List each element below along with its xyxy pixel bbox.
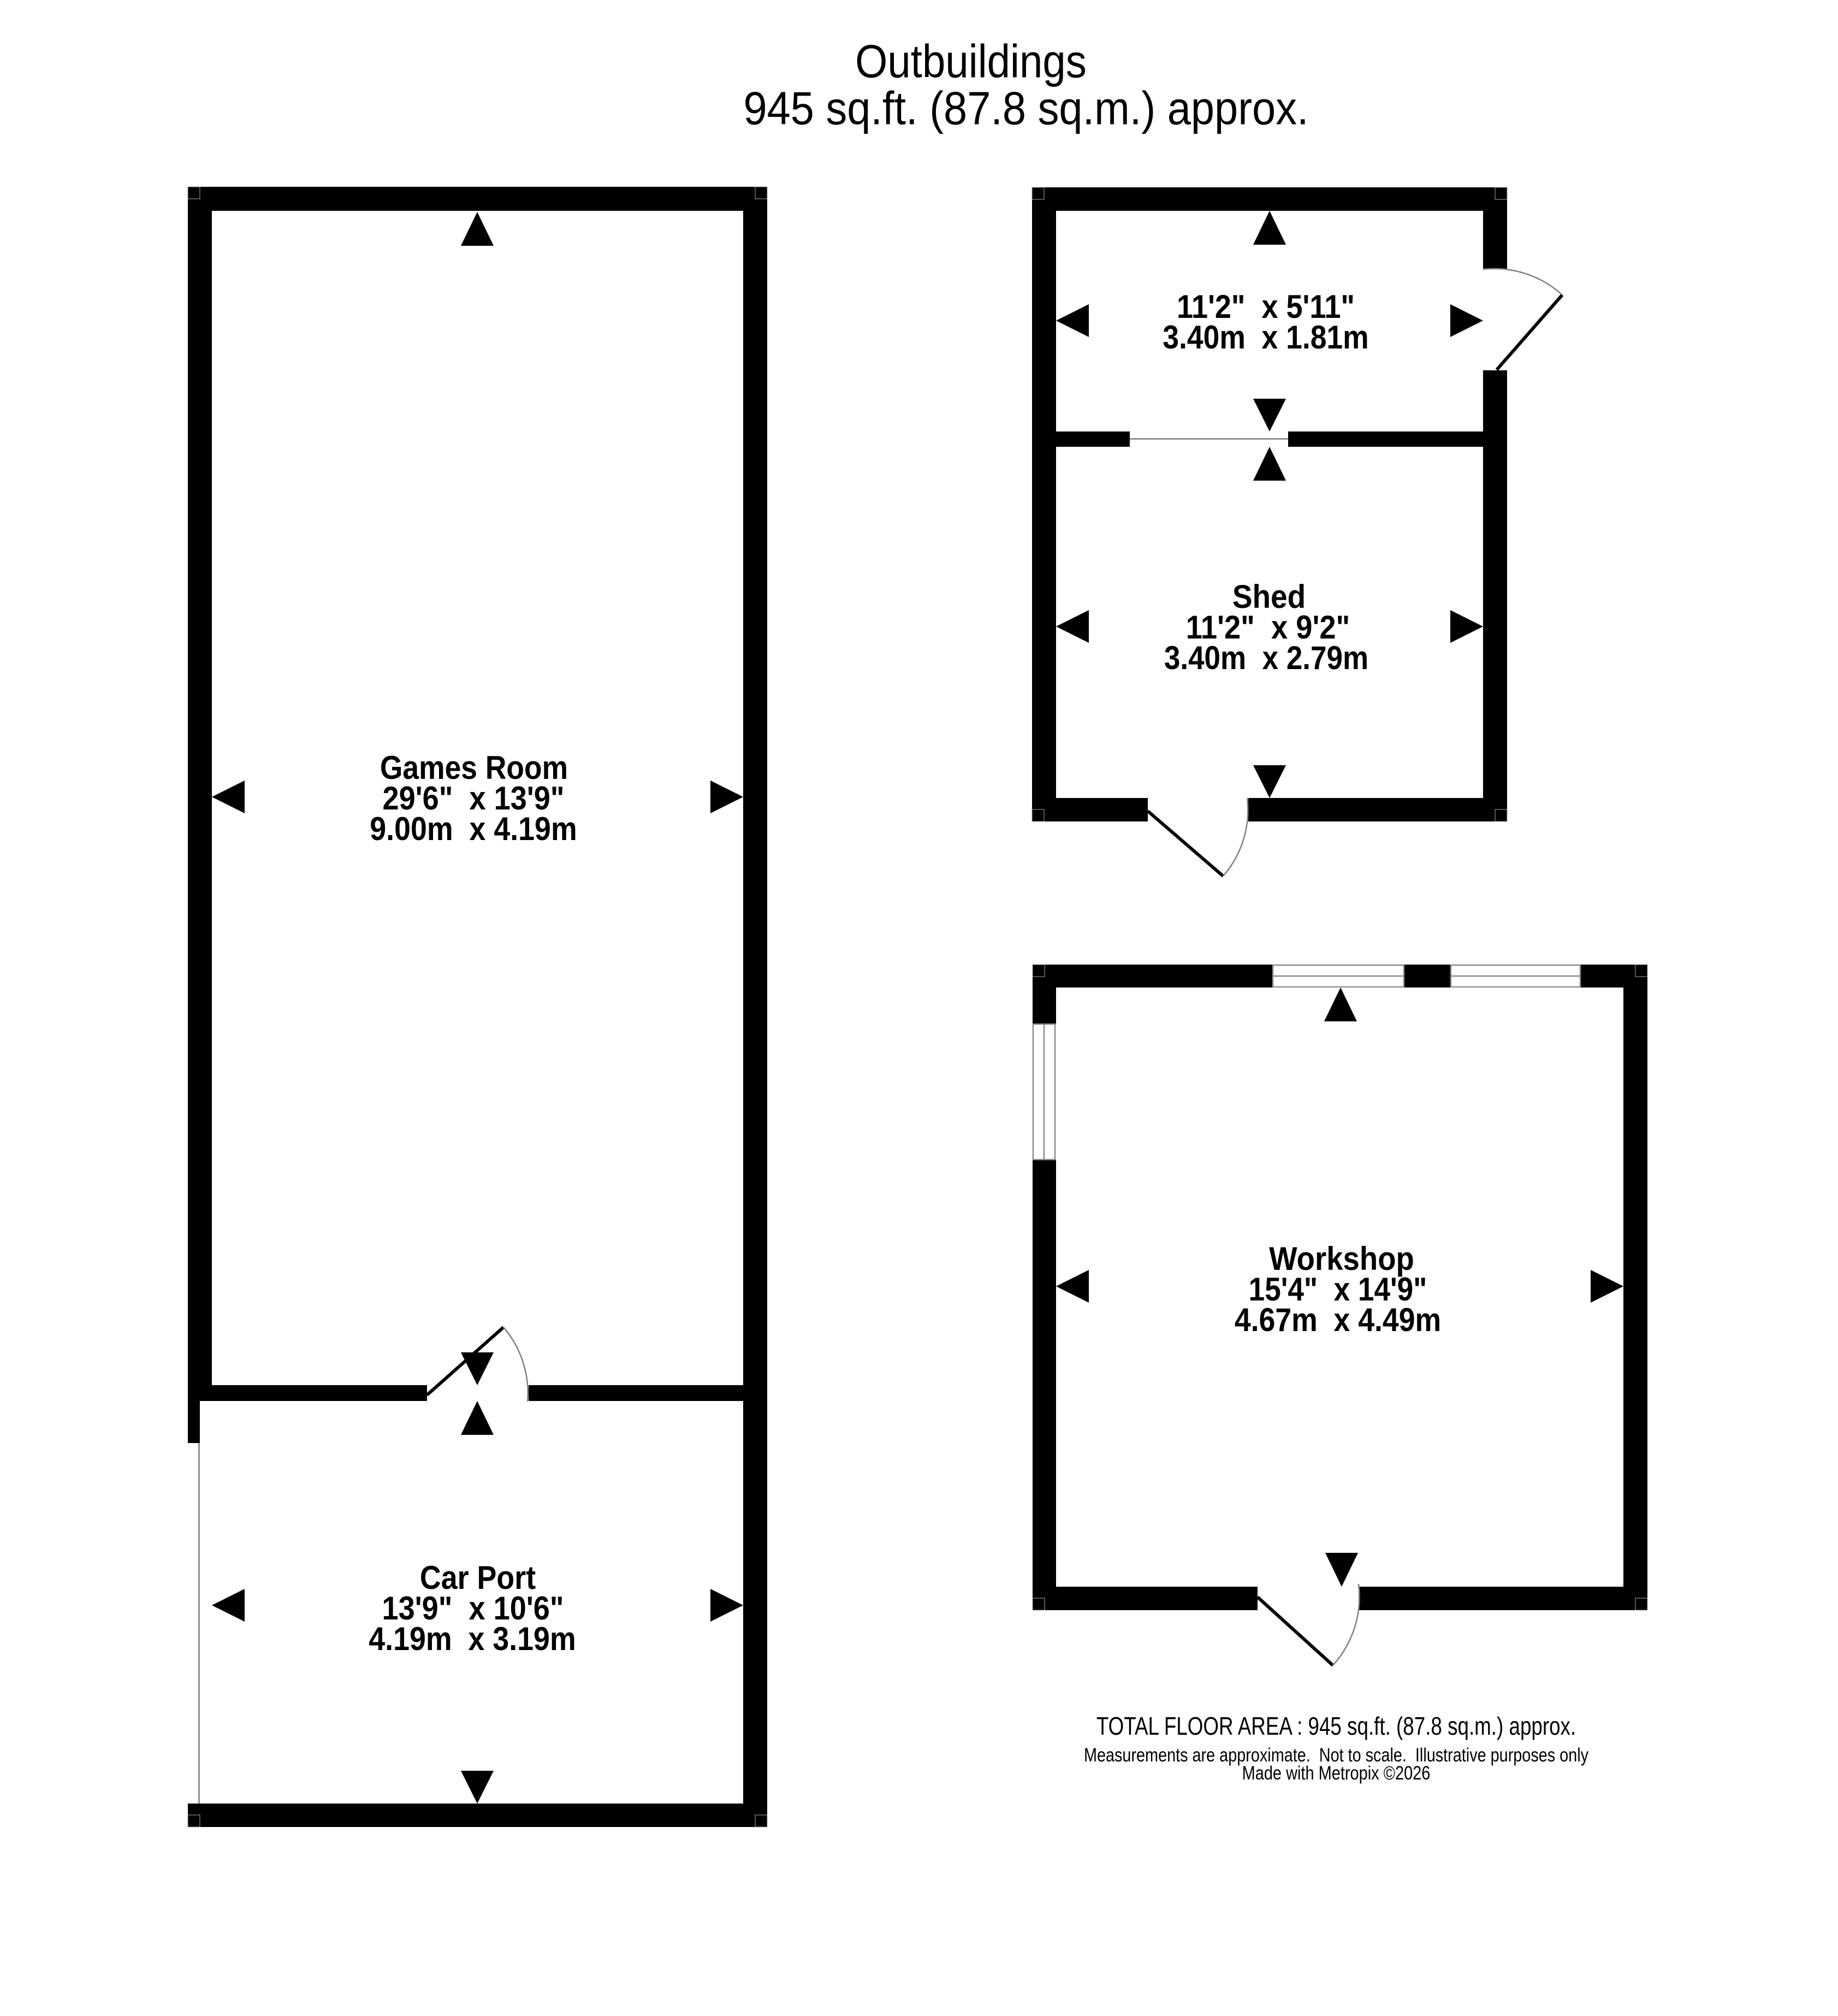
svg-text:4.67m x 4.49m: 4.67m x 4.49m xyxy=(1235,1302,1441,1339)
svg-text:4.19m x 3.19m: 4.19m x 3.19m xyxy=(369,1621,576,1658)
svg-text:Made with Metropix ©2026: Made with Metropix ©2026 xyxy=(1242,1762,1431,1783)
svg-text:TOTAL FLOOR AREA : 945 sq.ft.: TOTAL FLOOR AREA : 945 sq.ft. (87.8 sq.m… xyxy=(1096,1712,1576,1740)
svg-text:945 sq.ft. (87.8 sq.m.) approx: 945 sq.ft. (87.8 sq.m.) approx. xyxy=(743,82,1308,134)
svg-text:3.40m x 1.81m: 3.40m x 1.81m xyxy=(1163,319,1368,356)
svg-text:3.40m x 2.79m: 3.40m x 2.79m xyxy=(1164,640,1368,677)
svg-text:Outbuildings: Outbuildings xyxy=(855,36,1087,88)
svg-text:9.00m x 4.19m: 9.00m x 4.19m xyxy=(370,811,577,848)
